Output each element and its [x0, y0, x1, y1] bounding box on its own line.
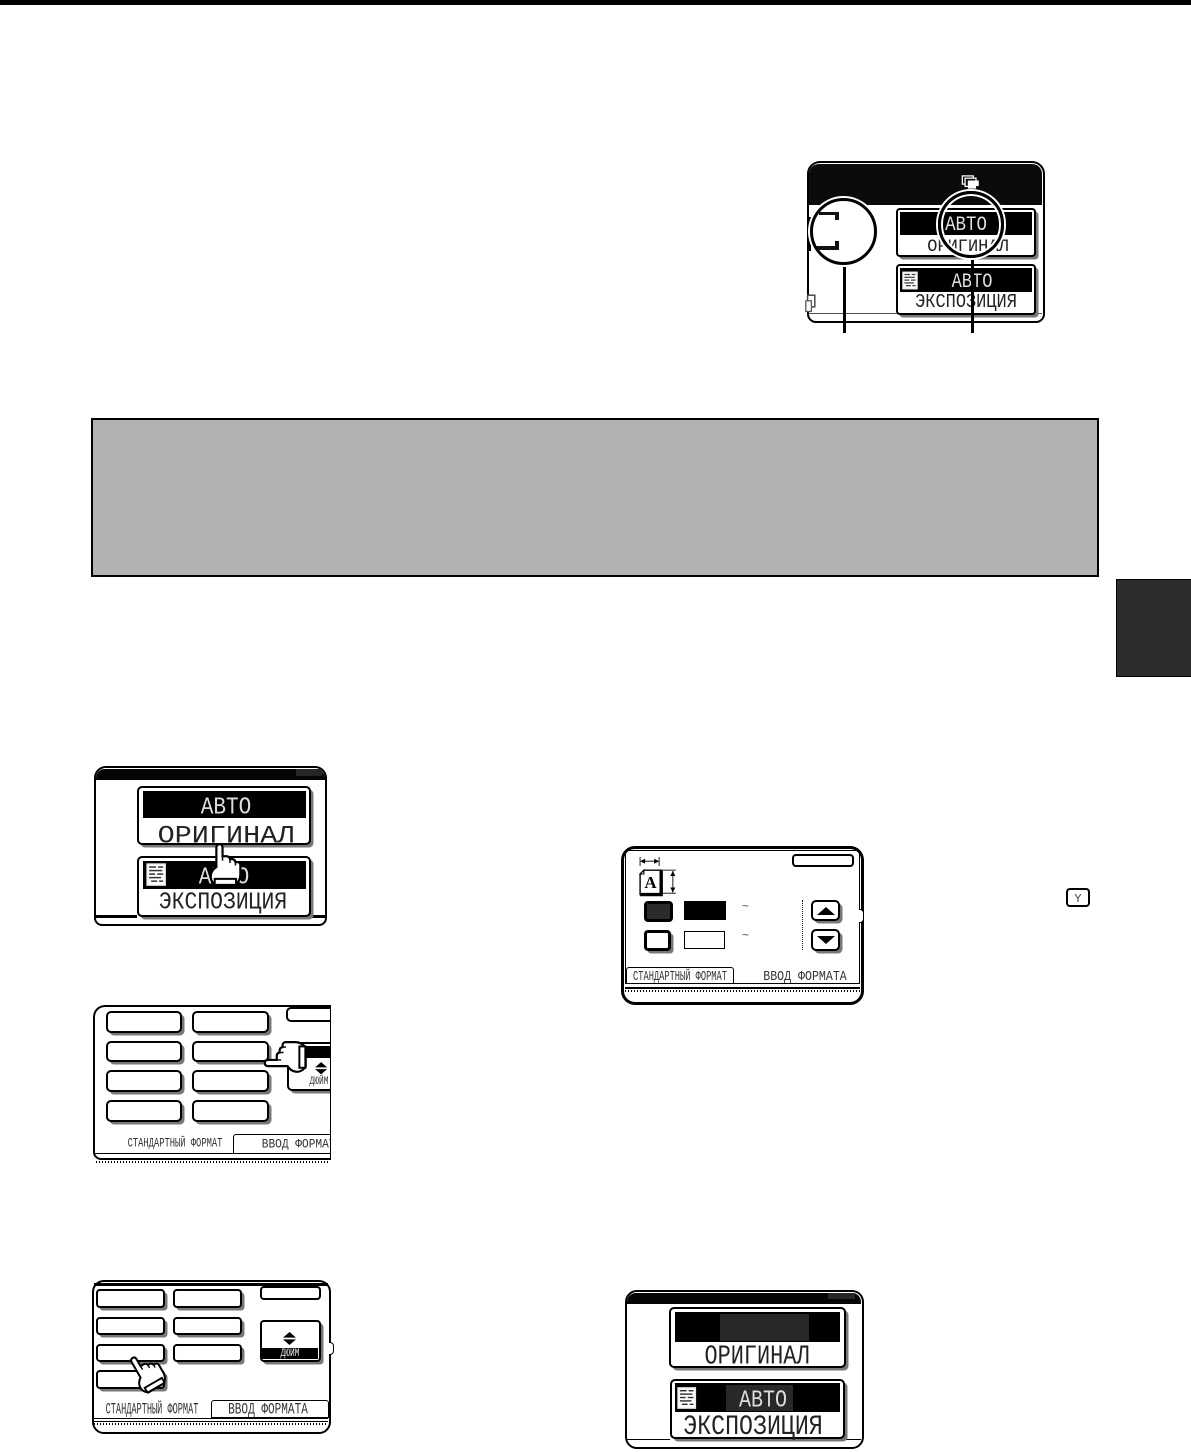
svg-text:A: A [644, 873, 657, 892]
